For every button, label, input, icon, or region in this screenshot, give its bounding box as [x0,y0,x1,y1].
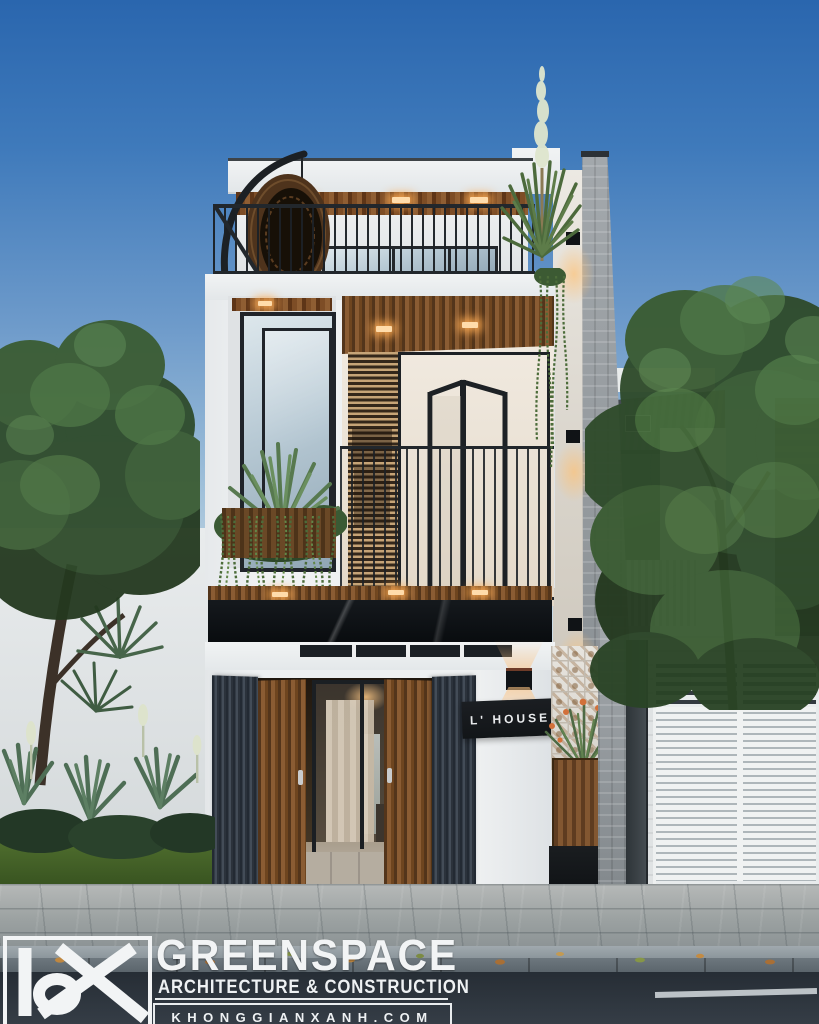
brand-tagline-rule [155,998,448,1000]
ceiling-light [462,322,478,328]
transom-mullion [406,645,410,657]
door-handle [387,768,392,783]
brand-tagline: ARCHITECTURE & CONSTRUCTION [158,978,470,997]
balcony-railing [340,449,554,599]
brand-logo-box [3,936,152,1024]
watermark: GREENSPACE ARCHITECTURE & CONSTRUCTION K… [0,928,480,1024]
yucca-flower-spike [534,66,549,168]
terrace-railing [213,206,535,274]
balcony-railing-top [340,446,554,449]
left-window-lintel [232,298,332,311]
ceiling-light [258,301,272,306]
render-canvas: L' HOUSE [0,0,819,1024]
tower-cap [581,151,609,157]
door-handle [298,770,303,785]
soffit-light [388,590,404,595]
right-tree [585,240,819,710]
agave-cluster [4,745,196,819]
rooftop-yucca-plant [498,56,582,301]
tower-hanging-vines [534,268,570,503]
low-bushes [0,809,215,859]
soffit-light [272,592,288,597]
door-stile [360,684,364,849]
bifold-door-dark-left [212,675,258,896]
ceiling-light [470,197,488,203]
transom-mullion [352,645,356,657]
brand-website-box: KHONGGIANXANH.COM [153,1003,452,1024]
left-tree [0,305,200,665]
brand-website: KHONGGIANXANH.COM [171,1011,433,1024]
soffit-light [472,590,488,595]
transom-mullion [460,645,464,657]
entry-glass-door [312,680,392,862]
bifold-door-wood-left [258,679,306,892]
ceiling-light [392,197,410,203]
tree-canopy [585,276,819,710]
ceiling-light [376,326,392,332]
right-opening-wood-ceiling [342,296,554,354]
band-wood-soffit [208,586,552,601]
terrace-railing-top [213,204,535,208]
sign-wall-lamp [506,668,532,690]
gate-slats [656,707,816,881]
railing-corner-brace [213,204,259,274]
black-marble-band [208,600,552,642]
bifold-door-wood-right [384,679,432,892]
kgx-monogram-icon [7,940,148,1023]
brand-name: GREENSPACE [156,934,458,978]
fan-palm-small [62,663,132,711]
